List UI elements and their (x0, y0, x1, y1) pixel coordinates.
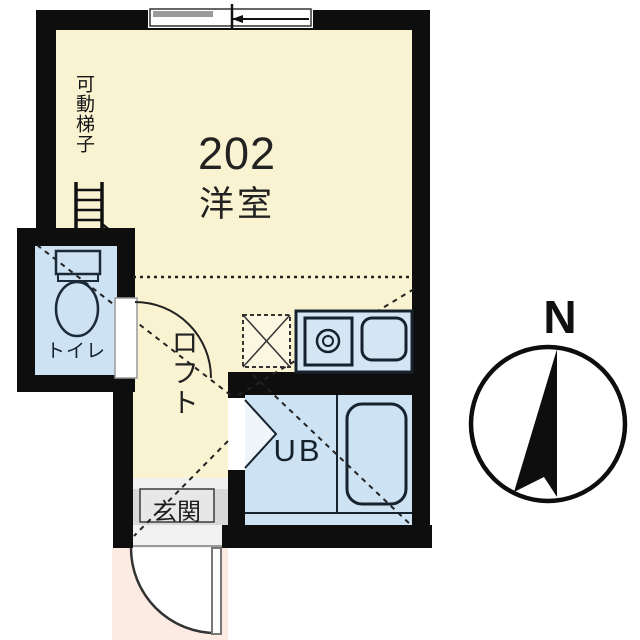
unit-bath-door-opening (228, 398, 245, 470)
unit-number-label: 202 (168, 128, 306, 180)
movable-ladder-label: 可動梯子 (70, 74, 97, 154)
kitchen-counter (296, 311, 412, 372)
room-type-label: 洋室 (168, 176, 306, 227)
compass-icon (471, 347, 625, 501)
washer-space-icon (243, 315, 290, 367)
unit-bath-label: UB (258, 433, 338, 469)
compass-north-label: N (518, 290, 602, 344)
window-icon (148, 4, 313, 30)
floor-plan-page: 可動梯子 202 洋室 トイレ ロフト UB 玄関 N (0, 0, 640, 640)
loft-label: ロフト (163, 328, 203, 418)
toilet-label: トイレ (34, 336, 118, 363)
entrance-label: 玄関 (140, 492, 214, 527)
entrance-door-opening (133, 525, 222, 548)
